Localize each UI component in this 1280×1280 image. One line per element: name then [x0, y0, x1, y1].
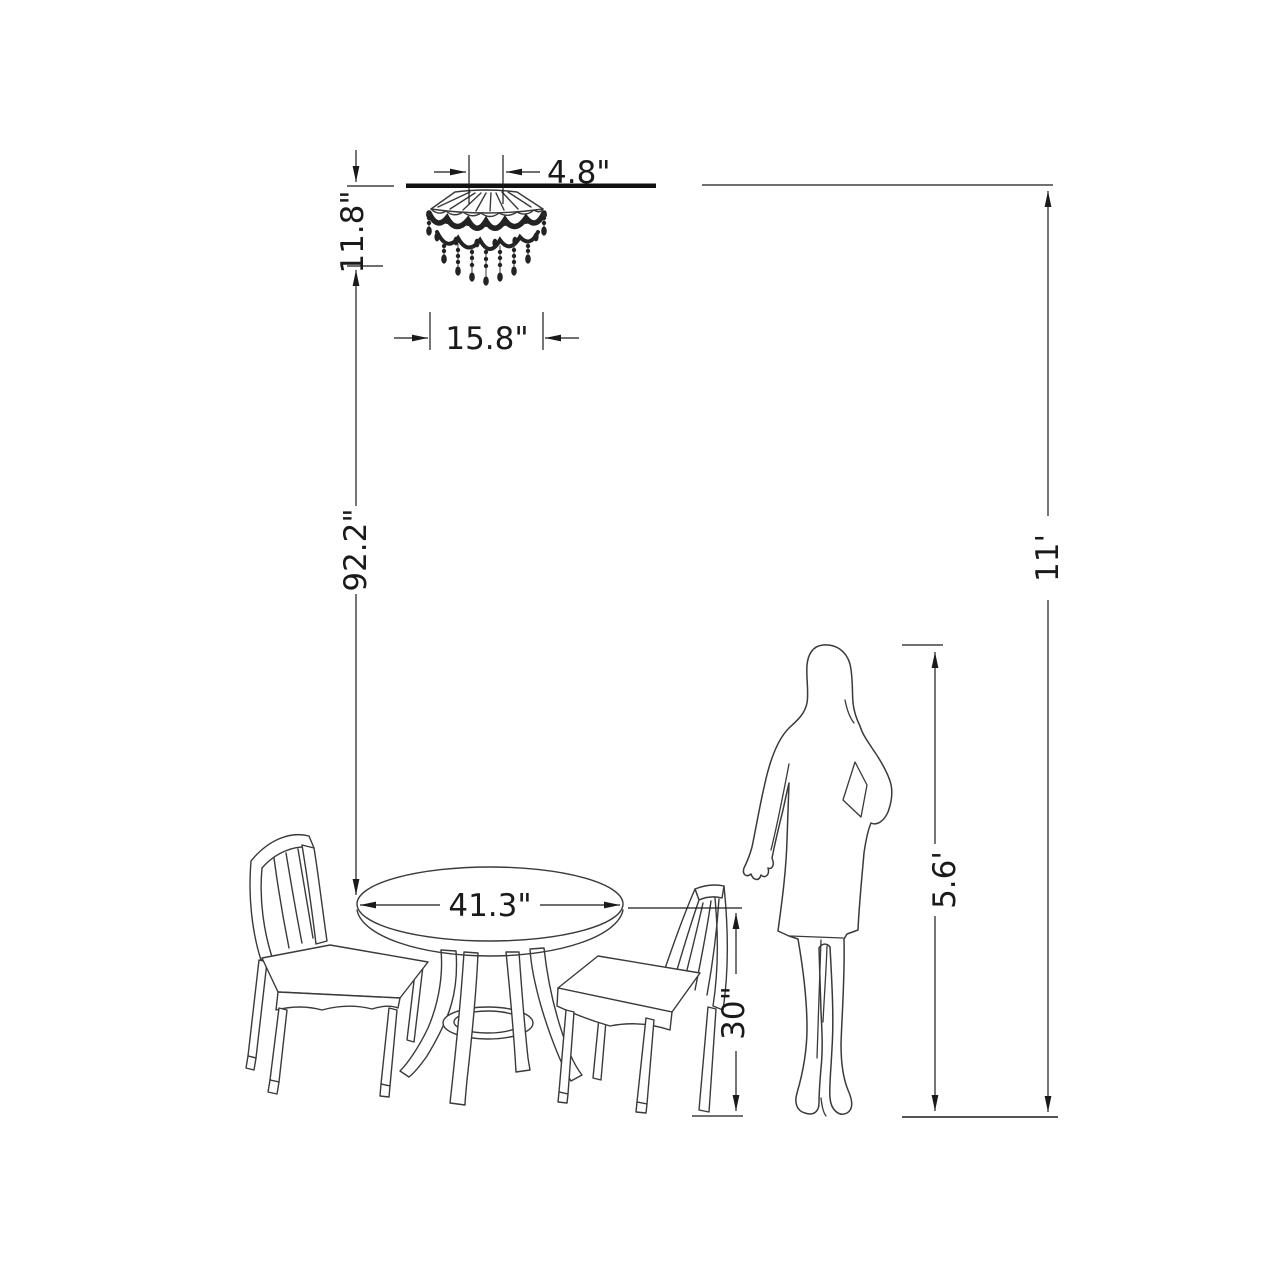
dim-table-diameter-label: 41.3": [448, 888, 531, 924]
dim-ceiling-height: 11': [1030, 191, 1066, 1112]
chandelier: [426, 190, 547, 286]
dim-person-height: 5.6': [902, 645, 963, 1111]
dim-hanging-height: 92.2": [338, 270, 374, 895]
dim-fixture-width: 15.8": [394, 312, 579, 357]
dim-fixture-height: 11.8": [335, 150, 394, 274]
dim-fixture-width-label: 15.8": [445, 321, 528, 357]
dim-ceiling-height-label: 11': [1030, 534, 1066, 582]
woman-silhouette: [743, 645, 891, 1116]
dim-table-height-label: 30": [716, 986, 752, 1040]
dim-hanging-height-label: 92.2": [338, 508, 374, 591]
dimension-diagram: 4.8" 11.8" 15.8" 92.2" 11': [0, 0, 1280, 1280]
dim-canopy-width-label: 4.8": [547, 155, 611, 191]
chair-left: [246, 835, 428, 1097]
dim-person-height-label: 5.6': [927, 851, 963, 909]
dim-fixture-height-label: 11.8": [335, 190, 371, 273]
